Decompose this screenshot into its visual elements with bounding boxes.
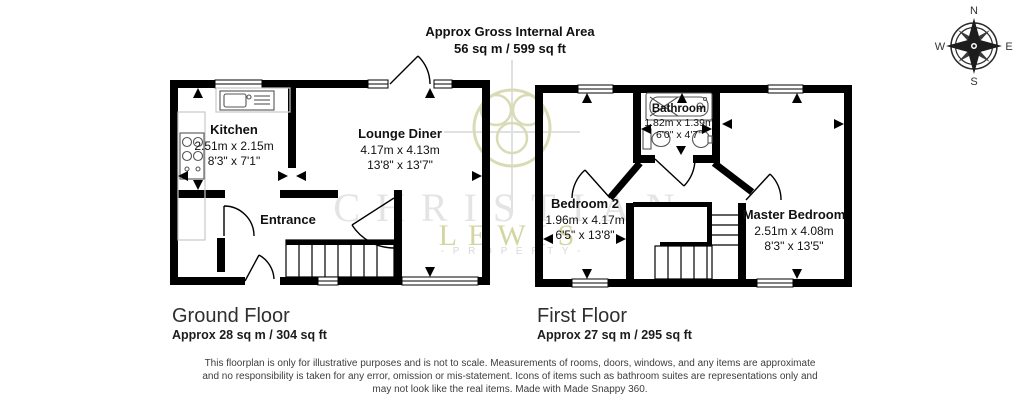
floorplan-page: CHRISTIAN LEWIS - P R O P E R T Y - [0, 0, 1020, 403]
room-name: Master Bedroom [743, 207, 846, 224]
first-stairs-icon [633, 202, 746, 279]
window [318, 277, 338, 285]
room-metric: 4.17m x 4.13m [358, 143, 442, 158]
measure-arrow [425, 267, 435, 277]
title-line2: 56 sq m / 599 sq ft [425, 41, 594, 58]
ground-floor-title: Ground Floor [172, 305, 290, 328]
measure-arrow [425, 88, 435, 98]
window [572, 279, 608, 287]
compass-north-label: N [970, 5, 978, 17]
room-name: Bathroom [644, 102, 713, 117]
disclaimer: This floorplan is only for illustrative … [0, 357, 1020, 396]
floorplan-drawing: N E S W [0, 0, 1020, 403]
window [578, 85, 613, 93]
room-name: Entrance [260, 212, 316, 229]
kitchen-label: Kitchen 2.51m x 2.15m 8'3" x 7'1" [194, 122, 273, 169]
measure-arrow [582, 269, 592, 279]
measure-arrow [472, 171, 482, 181]
measure-arrow [834, 119, 844, 129]
room-name: Kitchen [194, 122, 273, 139]
title-line1: Approx Gross Internal Area [425, 24, 594, 41]
room-name: Bedroom 2 [545, 196, 624, 213]
window [434, 80, 452, 88]
door-arc [655, 159, 695, 186]
room-metric: 1.96m x 4.17m [545, 213, 624, 228]
room-imperial: 8'3" x 7'1" [194, 154, 273, 169]
room-metric: 1.82m x 1.39m [644, 117, 713, 130]
measure-arrow [792, 269, 802, 279]
compass-rose-icon: N E S W [935, 5, 1013, 88]
compass-west-label: W [935, 41, 946, 53]
room-imperial: 8'3" x 13'5" [743, 239, 846, 254]
first-floor-title: First Floor [537, 305, 627, 328]
patio-door-opening [388, 79, 434, 89]
bedroom2-label: Bedroom 2 1.96m x 4.17m 6'5" x 13'8" [545, 196, 624, 243]
disclaimer-line1: This floorplan is only for illustrative … [0, 357, 1020, 370]
ground-floor-area: Approx 28 sq m / 304 sq ft [172, 328, 327, 342]
room-metric: 2.51m x 2.15m [194, 139, 273, 154]
measure-arrow [676, 146, 686, 155]
compass-east-label: E [1005, 41, 1012, 53]
measure-arrow [193, 180, 203, 190]
door-arc [746, 174, 781, 200]
window [368, 80, 388, 88]
room-imperial: 6'0" x 4'7" [644, 129, 713, 142]
compass-south-label: S [970, 76, 977, 88]
window [768, 85, 803, 93]
measure-arrow [193, 88, 203, 98]
entrance-label: Entrance [260, 212, 316, 229]
disclaimer-line2: and no responsibility is taken for any e… [0, 370, 1020, 383]
window [757, 279, 793, 287]
first-floor-area: Approx 27 sq m / 295 sq ft [537, 328, 692, 342]
lounge-diner-label: Lounge Diner 4.17m x 4.13m 13'8" x 13'7" [358, 126, 442, 173]
measure-arrow [296, 171, 306, 181]
window [215, 80, 262, 88]
bathroom-label: Bathroom 1.82m x 1.39m 6'0" x 4'7" [644, 102, 713, 142]
gross-internal-area-title: Approx Gross Internal Area 56 sq m / 599… [425, 24, 594, 58]
front-door-opening [245, 276, 280, 286]
sink-icon [220, 91, 274, 110]
room-metric: 2.51m x 4.08m [743, 224, 846, 239]
disclaimer-line3: may not look like the real items. Made w… [0, 383, 1020, 396]
window [402, 277, 478, 285]
room-imperial: 6'5" x 13'8" [545, 228, 624, 243]
first-diagonal-walls [610, 163, 752, 198]
master-bedroom-label: Master Bedroom 2.51m x 4.08m 8'3" x 13'5… [743, 207, 846, 254]
door-arc [224, 206, 254, 236]
room-imperial: 13'8" x 13'7" [358, 158, 442, 173]
measure-arrow [792, 93, 802, 103]
measure-arrow [278, 171, 288, 181]
door-arc [572, 170, 610, 198]
room-name: Lounge Diner [358, 126, 442, 143]
measure-arrow [582, 93, 592, 103]
measure-arrow [722, 119, 732, 129]
ground-floor-plan [170, 56, 490, 286]
